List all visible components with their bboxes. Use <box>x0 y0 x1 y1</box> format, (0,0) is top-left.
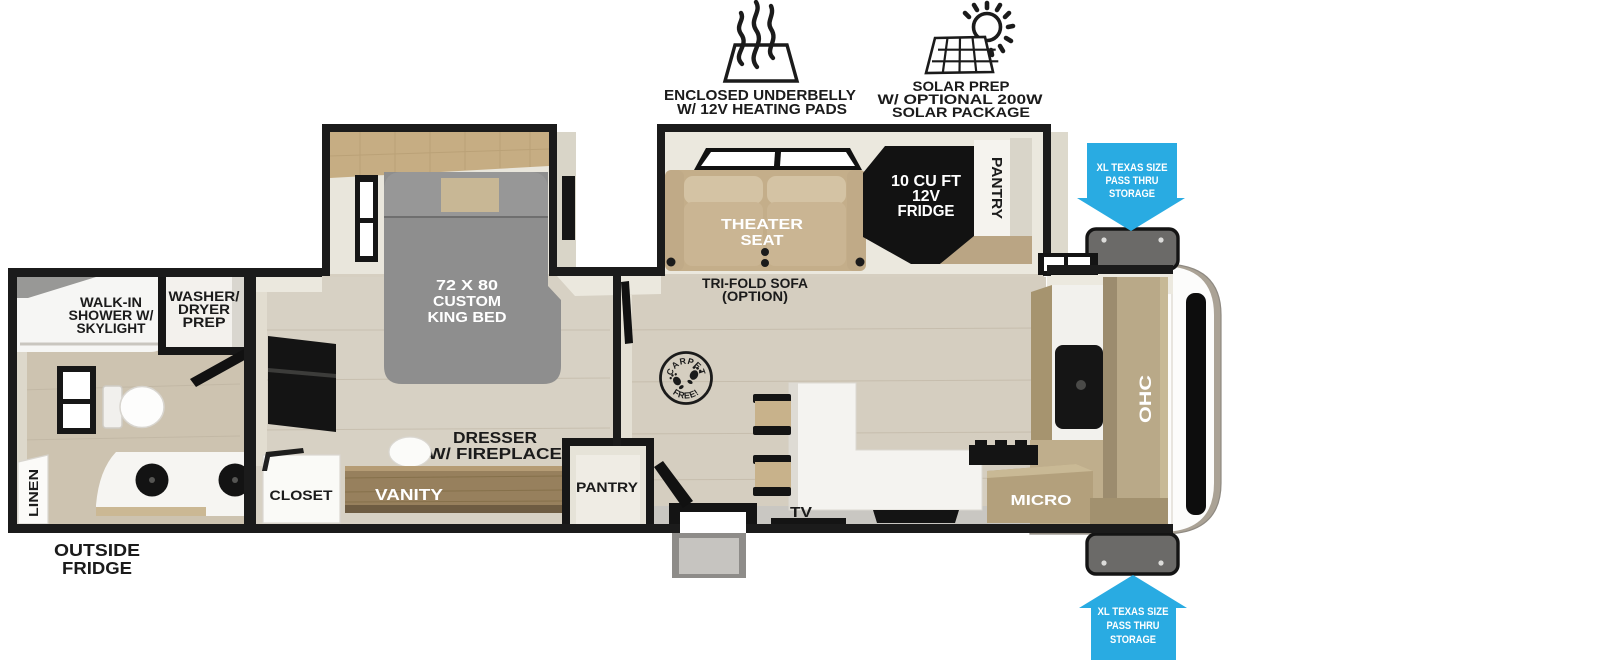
svg-text:FRIDGE: FRIDGE <box>62 558 132 578</box>
svg-text:STORAGE: STORAGE <box>1110 634 1156 646</box>
svg-text:PREP: PREP <box>183 315 226 330</box>
svg-text:VANITY: VANITY <box>375 487 444 504</box>
svg-text:PASS THRU: PASS THRU <box>1107 620 1160 632</box>
svg-text:W/ 12V HEATING PADS: W/ 12V HEATING PADS <box>677 102 847 118</box>
svg-text:(OPTION): (OPTION) <box>722 289 788 304</box>
svg-text:FRIDGE: FRIDGE <box>898 203 955 220</box>
svg-text:CLOSET: CLOSET <box>270 487 333 503</box>
svg-text:72 X 80: 72 X 80 <box>436 277 498 294</box>
svg-text:SEAT: SEAT <box>741 232 784 249</box>
svg-text:W/ FIREPLACE: W/ FIREPLACE <box>428 446 562 463</box>
svg-text:OUTSIDE: OUTSIDE <box>54 540 140 560</box>
svg-text:PANTRY: PANTRY <box>988 157 1004 219</box>
svg-text:STORAGE: STORAGE <box>1109 188 1155 200</box>
svg-text:KING BED: KING BED <box>428 309 507 326</box>
svg-text:MICRO: MICRO <box>1011 493 1072 509</box>
svg-text:SKYLIGHT: SKYLIGHT <box>77 321 147 336</box>
svg-text:THEATER: THEATER <box>721 216 803 233</box>
svg-text:PANTRY: PANTRY <box>576 479 639 495</box>
svg-text:XL TEXAS SIZE: XL TEXAS SIZE <box>1097 162 1168 174</box>
svg-text:PASS THRU: PASS THRU <box>1106 175 1159 187</box>
svg-text:CUSTOM: CUSTOM <box>433 293 501 310</box>
svg-text:DRESSER: DRESSER <box>453 430 537 447</box>
svg-text:OHC: OHC <box>1137 375 1155 423</box>
svg-text:SOLAR PACKAGE: SOLAR PACKAGE <box>892 105 1030 120</box>
svg-text:XL TEXAS SIZE: XL TEXAS SIZE <box>1098 606 1169 618</box>
svg-text:LINEN: LINEN <box>26 469 41 517</box>
